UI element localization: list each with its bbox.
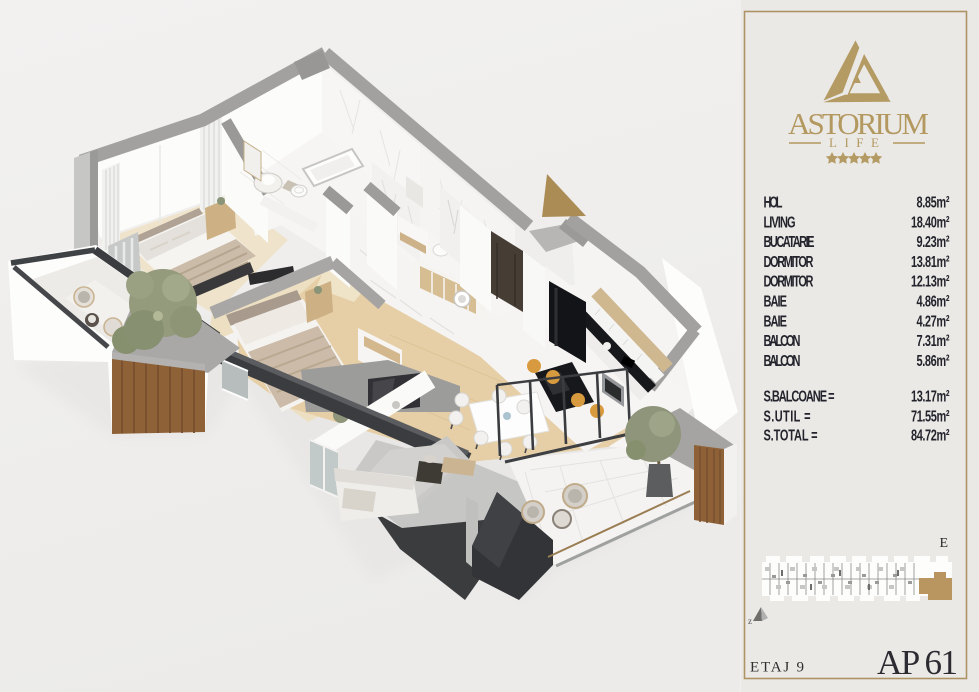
svg-text:8.85m²: 8.85m² xyxy=(917,194,950,211)
svg-text:z: z xyxy=(748,616,752,626)
svg-text:S.BALCOANE =: S.BALCOANE = xyxy=(764,388,835,405)
svg-text:LIVING: LIVING xyxy=(764,213,796,230)
svg-text:4.27m²: 4.27m² xyxy=(917,312,950,329)
svg-text:7.31m²: 7.31m² xyxy=(917,332,950,349)
svg-text:12.13m²: 12.13m² xyxy=(911,273,950,290)
svg-text:DORMITOR: DORMITOR xyxy=(764,273,814,290)
svg-text:AP 61: AP 61 xyxy=(877,643,958,682)
svg-text:S.UTIL =: S.UTIL = xyxy=(764,407,811,424)
svg-text:BALCON: BALCON xyxy=(764,332,801,349)
svg-text:18.40m²: 18.40m² xyxy=(911,213,950,230)
svg-text:BAIE: BAIE xyxy=(764,312,788,329)
svg-text:BAIE: BAIE xyxy=(764,293,788,310)
svg-text:5.86m²: 5.86m² xyxy=(917,352,950,369)
svg-text:LIFE: LIFE xyxy=(829,135,886,150)
svg-text:HOL: HOL xyxy=(764,194,783,211)
svg-text:S.TOTAL =: S.TOTAL = xyxy=(764,426,818,443)
svg-text:4.86m²: 4.86m² xyxy=(917,293,950,310)
svg-text:DORMITOR: DORMITOR xyxy=(764,253,814,270)
svg-text:84.72m²: 84.72m² xyxy=(911,426,950,443)
svg-text:ETAJ 9: ETAJ 9 xyxy=(750,660,804,676)
svg-text:71.55m²: 71.55m² xyxy=(911,407,950,424)
svg-text:BUCATARIE: BUCATARIE xyxy=(764,233,815,250)
svg-text:13.17m²: 13.17m² xyxy=(911,388,950,405)
svg-text:13.81m²: 13.81m² xyxy=(911,253,950,270)
svg-text:BALCON: BALCON xyxy=(764,352,801,369)
svg-text:E: E xyxy=(940,536,949,551)
svg-text:9.23m²: 9.23m² xyxy=(917,233,950,250)
